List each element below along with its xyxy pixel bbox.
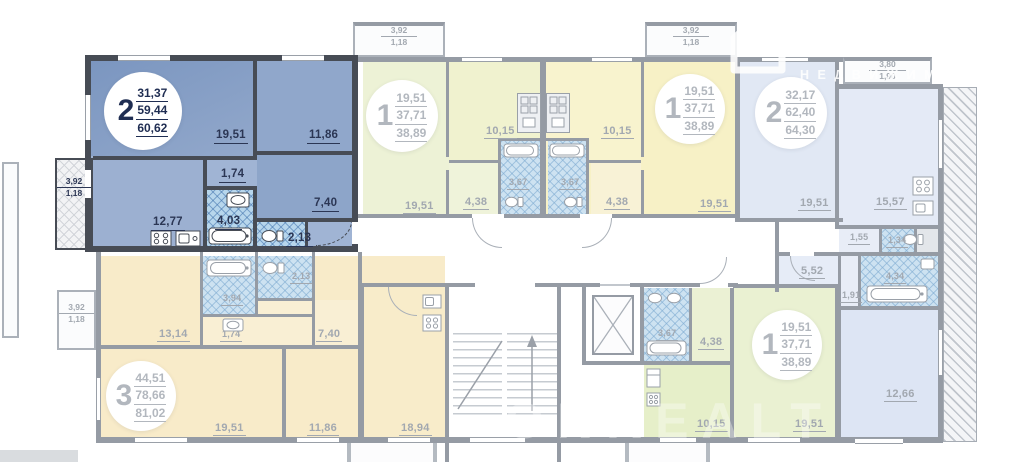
stove-icon [422,314,442,332]
window [938,330,943,375]
vent-grid-icon [549,96,567,130]
room-label: 1,55 [848,233,870,245]
balcony-half-area: 1,18 [57,188,91,199]
room-label: 4,34 [884,272,906,284]
area-total: 60,62 [136,120,168,137]
room-label: 13,14 [157,328,190,342]
apartment-badge: 1 19,51 37,71 38,89 [752,310,822,380]
wall [775,222,779,292]
kitchen-sink-icon [422,294,442,309]
balcony-full-area: 3,92 [673,25,709,37]
balcony-full-area: 3,92 [381,25,417,37]
toilet-icon [261,261,285,275]
wall [738,218,843,222]
wall [642,283,700,287]
area-usable: 62,40 [784,104,816,121]
balcony-label: 3,92 1,18 [57,176,91,199]
wall [838,306,938,310]
apartment-badge: 1 19,51 37,71 38,89 [655,74,725,144]
room-label: 10,15 [484,125,517,139]
area-total: 38,89 [780,354,812,371]
area-usable: 59,44 [136,102,168,119]
room-label: 1,34 [886,236,908,248]
wall [85,55,91,252]
stove-icon [912,176,934,196]
room-label: 4,38 [604,196,630,210]
bathtub-icon [206,259,252,277]
room-count: 3 [116,381,133,411]
wall [588,160,641,163]
wall [312,252,315,345]
balcony-stub-left [347,443,437,462]
wall [546,138,589,141]
room-label: 7,40 [312,197,339,212]
apt6-entry-door-arc [700,257,727,284]
room-label: 12,66 [884,388,917,402]
room-label: 3,67 [507,178,529,190]
area-usable: 37,71 [395,107,427,124]
balcony-half-area: 1,18 [59,314,94,325]
adjacent-balcony-strip [2,162,19,338]
room-label: 3,67 [656,329,678,341]
elevator-cross-icon [594,297,632,353]
apartment-badge: 3 44,51 78,66 81,02 [106,361,176,431]
wall [582,283,600,287]
watermark-ghost: ONREALT [505,392,834,450]
entry-door-gap [352,222,358,244]
area-living: 19,51 [683,83,715,100]
area-usable: 37,71 [683,100,715,117]
balcony-label: 3,92 1,18 [59,302,94,325]
wall [446,62,449,157]
wall [641,62,644,157]
area-total: 64,30 [784,122,816,139]
room-label: 7,40 [316,328,342,342]
vent-grid-icon [520,96,538,130]
window [462,57,502,62]
wall [582,287,586,365]
wall [449,160,501,163]
sink-icon [647,292,663,304]
wall [358,252,362,287]
wall [85,246,358,252]
wall [689,288,692,361]
window [118,55,170,61]
window [297,437,339,443]
room-label: 1,74 [220,330,242,342]
toilet-icon [504,196,524,208]
kitchen-sink-icon [912,200,934,216]
window [388,437,430,443]
window [938,120,943,168]
bathtub-icon [503,143,539,158]
wall [540,57,546,217]
sink-icon [226,192,250,208]
window [85,95,91,140]
wall [253,61,257,158]
balcony-full-area: 3,92 [59,302,94,314]
area-total: 38,89 [395,125,427,142]
bathtub-icon [208,227,252,245]
room-count: 2 [118,96,135,126]
room-label: 18,94 [399,422,432,436]
house-logo-icon [726,12,790,74]
wall [200,314,315,317]
apt3-entry-door-arc [582,218,612,248]
future-section-hatch [943,87,977,442]
room-label: 1,91 [840,291,862,303]
wall [358,287,364,437]
balcony-label: 3,92 1,18 [673,25,709,48]
wall [640,361,733,365]
area-usable: 37,71 [780,336,812,353]
balcony-full-area: 3,92 [57,176,91,188]
room-label: 2,13 [290,272,312,284]
wall [255,252,258,314]
apt2-entry-door-arc [472,218,502,248]
bathtub-icon [549,143,585,158]
window [96,378,101,420]
balcony-half-area: 1,18 [673,37,709,48]
room-label: 19,51 [798,197,831,211]
room-count: 1 [377,101,394,131]
room-label: 19,51 [698,198,731,212]
wall [835,288,841,438]
wall [203,186,257,190]
room-label: 3,94 [221,294,243,306]
room-label: 4,38 [698,336,724,350]
wall [100,345,362,349]
wall [358,214,740,218]
wall [733,284,838,288]
room-label: 12,77 [151,216,185,231]
wall [728,283,738,287]
area-living: 44,51 [134,370,166,387]
room-label: 11,86 [307,422,339,436]
wall [93,156,257,160]
wall [641,170,644,214]
room-label: 11,86 [307,129,340,144]
wall [446,170,449,214]
window [855,438,903,444]
area-living: 19,51 [780,319,812,336]
room-label: 10,15 [601,125,634,139]
toilet-icon [563,196,583,208]
room-count: 1 [762,330,779,360]
room-label: 19,51 [214,129,248,144]
wall [358,57,543,62]
bathtub-icon [866,285,928,303]
room-label: 2,13 [286,232,313,247]
wall [253,151,356,155]
bathtub-icon [646,340,687,356]
window [592,57,632,62]
area-usable: 78,66 [134,387,166,404]
wall [640,287,644,365]
floor-plan: 19,51 11,86 1,74 7,40 12,77 4,03 2,13 3,… [0,0,1024,462]
balcony-half-area: 1,18 [381,37,417,48]
room-label: 3,67 [559,178,581,190]
room-count: 1 [665,94,682,124]
wall [835,225,943,229]
wall [282,349,286,437]
wall [258,298,315,301]
watermark-brand: ONREALT [796,16,1024,66]
fridge-icon [646,368,661,388]
wall [630,283,644,287]
room-label: 4,38 [463,196,489,210]
toilet-icon [260,229,284,243]
balcony-label: 3,92 1,18 [381,25,417,48]
sink-icon [920,258,935,270]
room-label: 15,57 [874,196,907,210]
watermark-logo: ONREALT НЕДВИЖИМОСТЬ [726,4,1024,104]
room-label: 19,51 [403,200,436,214]
apt4-bedroom [841,310,938,438]
area-total: 38,89 [683,118,715,135]
wall [582,361,644,365]
watermark-subtitle: НЕДВИЖИМОСТЬ [800,68,1012,82]
room-label: 5,52 [799,265,825,279]
apartment-badge: 1 19,51 37,71 38,89 [366,80,438,152]
wall [586,138,589,214]
room-label: 4,03 [215,215,242,230]
window [135,437,187,443]
area-living: 19,51 [395,90,427,107]
wall [200,252,203,345]
kitchen-sink-icon [175,230,201,247]
wall [498,138,501,214]
room-label: 19,51 [213,422,246,436]
sink-icon [666,292,682,304]
wall [203,156,207,250]
stove-icon [150,230,172,247]
window [282,55,324,61]
adjacent-slab [0,450,78,462]
room-label: 1,74 [219,168,246,183]
elevator-door-line [600,284,630,286]
apartment-badge: 2 31,37 59,44 60,62 [104,72,182,150]
area-living: 31,37 [136,85,168,102]
area-total: 81,02 [134,405,166,422]
